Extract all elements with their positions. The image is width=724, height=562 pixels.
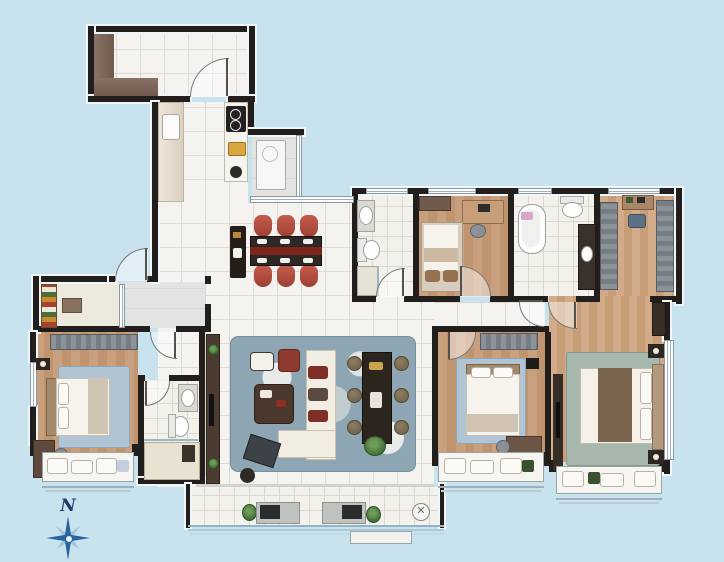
dining-chair xyxy=(277,215,295,237)
exterior-line xyxy=(559,502,659,504)
exterior-line xyxy=(438,486,544,488)
door-leaf xyxy=(519,300,543,302)
master-headboard xyxy=(652,364,664,450)
balcony-monitor xyxy=(260,505,280,519)
wall xyxy=(205,304,211,332)
coffee-table-tray xyxy=(260,390,272,398)
lamp xyxy=(40,361,46,367)
wall xyxy=(432,332,438,452)
floor-drain: ✕ xyxy=(412,503,430,521)
closet-wardrobe-left xyxy=(600,202,618,290)
wall xyxy=(419,296,460,302)
sideboard-panda-mug xyxy=(233,248,242,258)
wall xyxy=(33,276,107,282)
lamp xyxy=(653,454,659,460)
place-setting xyxy=(257,258,267,263)
wall xyxy=(205,276,211,284)
tea-stool xyxy=(347,388,362,403)
sofa-pillow-red xyxy=(308,410,328,422)
burner xyxy=(230,109,241,120)
bed1-pillow xyxy=(58,383,69,405)
balcony-plant xyxy=(366,506,381,523)
dining-chair xyxy=(300,215,318,237)
bed3-pillow xyxy=(443,270,458,282)
entry-door-arc xyxy=(115,248,148,281)
bay-pillow xyxy=(444,458,466,474)
door-leaf xyxy=(460,266,462,296)
coffee-table-book xyxy=(276,400,286,407)
wall xyxy=(490,296,514,302)
glass-railing xyxy=(188,525,444,527)
plant xyxy=(208,344,219,355)
wall xyxy=(576,296,600,302)
bath1-basin xyxy=(359,206,373,225)
tea-stool xyxy=(394,420,409,435)
sideboard-item xyxy=(233,232,241,238)
dresser-item xyxy=(637,197,645,203)
bed3-throw xyxy=(424,248,458,262)
place-setting xyxy=(280,239,290,244)
bed3-monitor xyxy=(478,204,490,212)
armchair-red xyxy=(278,349,300,372)
closet-cabinet xyxy=(652,302,666,336)
compass-n-label: N xyxy=(30,496,106,516)
lamp xyxy=(653,348,659,354)
compass: N xyxy=(30,496,106,562)
place-setting xyxy=(257,239,267,244)
tea-stool xyxy=(347,420,362,435)
shower-glass xyxy=(144,439,198,441)
bay-pillow xyxy=(96,458,117,474)
entry-door-leaf xyxy=(145,248,147,280)
bed3-wardrobe xyxy=(419,196,451,211)
bed3-chair xyxy=(470,224,486,238)
window xyxy=(250,196,354,203)
wall xyxy=(404,296,419,302)
dining-chair xyxy=(300,265,318,287)
door-leaf xyxy=(145,381,147,405)
exterior-line xyxy=(556,498,662,500)
bay-pillow xyxy=(500,458,522,474)
bed2-wall-tv xyxy=(526,358,539,369)
floor-plan: ✕ N xyxy=(0,0,724,562)
bay-pillow xyxy=(470,460,494,474)
window xyxy=(428,188,476,194)
master-pillow xyxy=(640,372,652,404)
bay-cushion xyxy=(117,460,129,472)
wall xyxy=(545,332,551,462)
balcony-floor xyxy=(190,487,442,525)
sofa-pillow xyxy=(308,388,328,401)
bed2-pillow xyxy=(493,367,513,378)
bed1-throw xyxy=(88,378,108,434)
wall xyxy=(30,407,36,444)
table-runner xyxy=(250,247,322,255)
bed2-wardrobe xyxy=(480,333,538,350)
door-leaf xyxy=(574,302,576,328)
window xyxy=(518,188,552,194)
sofa-chaise xyxy=(278,430,336,458)
compass-center xyxy=(65,535,73,543)
entry-corridor-floor xyxy=(125,282,205,328)
wall xyxy=(249,26,255,102)
bay-pillow xyxy=(634,471,656,487)
wall xyxy=(88,26,255,32)
door-leaf xyxy=(174,332,176,358)
bay-pillow xyxy=(47,458,68,474)
kitchen-item xyxy=(228,142,246,156)
bay-pillow xyxy=(600,473,624,487)
wall xyxy=(107,276,115,282)
wall xyxy=(676,188,682,304)
door-leaf xyxy=(448,332,450,359)
balcony-threshold xyxy=(196,484,434,487)
exterior-line xyxy=(441,490,541,492)
tea-set xyxy=(369,362,383,370)
place-setting xyxy=(280,258,290,263)
dining-chair xyxy=(277,265,295,287)
door-arc xyxy=(150,332,177,359)
exterior-line xyxy=(42,486,134,488)
living-plant xyxy=(364,436,386,456)
place-setting xyxy=(303,258,313,263)
window xyxy=(296,135,302,197)
balcony-monitor xyxy=(342,505,362,519)
bed2-pillow xyxy=(471,367,491,378)
tea-stool xyxy=(394,388,409,403)
toilet xyxy=(562,202,583,218)
wall xyxy=(138,375,145,381)
bay-plant xyxy=(522,460,534,472)
side-table xyxy=(240,468,255,483)
closet-wardrobe-right xyxy=(656,200,674,292)
mbath-basin xyxy=(581,246,593,262)
wall xyxy=(147,276,158,282)
wall xyxy=(169,375,200,381)
master-duvet xyxy=(598,368,632,442)
sofa-pillow-red xyxy=(308,366,328,379)
living-tv xyxy=(209,394,214,426)
window xyxy=(664,340,674,460)
bay-pillow xyxy=(562,471,584,487)
balcony-plant xyxy=(242,504,257,521)
foyer-bench xyxy=(94,78,158,96)
place-setting xyxy=(303,239,313,244)
wall xyxy=(508,194,514,296)
tea-tray xyxy=(370,392,382,408)
bath-towel-pink xyxy=(521,212,533,220)
master-pillow xyxy=(640,408,652,440)
bed3-pillow xyxy=(425,270,440,282)
water-heater-drum xyxy=(262,146,278,162)
tea-stool xyxy=(394,356,409,371)
bed2-throw xyxy=(466,414,518,432)
plant xyxy=(208,458,219,469)
dining-chair xyxy=(254,215,272,237)
bed1-wardrobe xyxy=(50,334,138,350)
wall xyxy=(33,276,39,332)
kitchen-sink-round xyxy=(230,166,242,178)
toilet xyxy=(363,240,380,260)
dining-chair xyxy=(254,265,272,287)
bay-pillow xyxy=(71,460,93,474)
wall xyxy=(352,296,376,302)
kitchen-sink xyxy=(162,114,180,140)
window xyxy=(608,188,660,194)
wall xyxy=(186,484,190,528)
armchair-white xyxy=(250,352,274,371)
shower-niche xyxy=(182,445,195,462)
bed1-pillow xyxy=(58,407,69,429)
balcony-step xyxy=(350,531,412,544)
exterior-line xyxy=(45,490,131,492)
wall xyxy=(664,460,670,474)
closet-stool xyxy=(628,214,646,228)
tea-stool xyxy=(347,356,362,371)
pantry-shelf xyxy=(41,284,57,328)
ensuite-basin xyxy=(181,389,195,407)
door-leaf xyxy=(402,268,404,296)
window xyxy=(366,188,408,194)
burner xyxy=(230,120,241,131)
bifold-door xyxy=(119,284,125,328)
master-tv xyxy=(556,402,560,438)
bay-plant xyxy=(588,472,600,484)
ensuite-toilet-tank xyxy=(168,414,176,438)
door-leaf xyxy=(226,58,228,96)
pantry-table xyxy=(62,298,82,313)
dresser-item xyxy=(626,197,633,203)
